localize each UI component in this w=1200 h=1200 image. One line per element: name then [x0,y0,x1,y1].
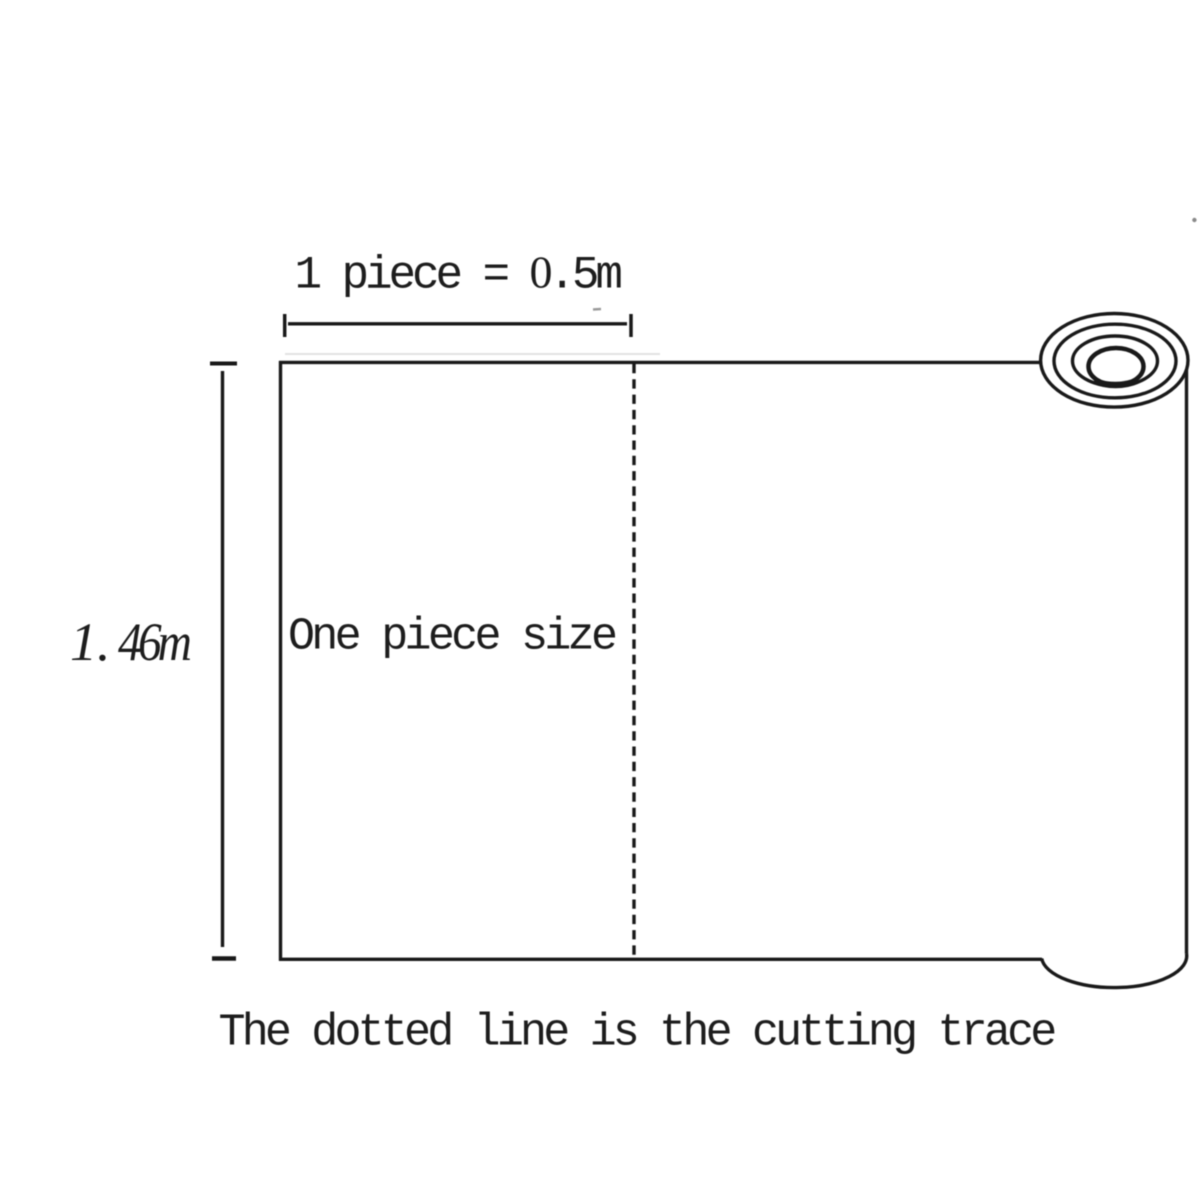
svg-text:1.: 1. [70,612,111,672]
svg-text:1 piece = 0.5m: 1 piece = 0.5m [295,247,624,302]
svg-text:m: m [158,613,192,672]
svg-text:One piece size: One piece size [288,611,618,662]
svg-text:The dotted line is the cutting: The dotted line is the cutting trace [219,1008,1058,1059]
